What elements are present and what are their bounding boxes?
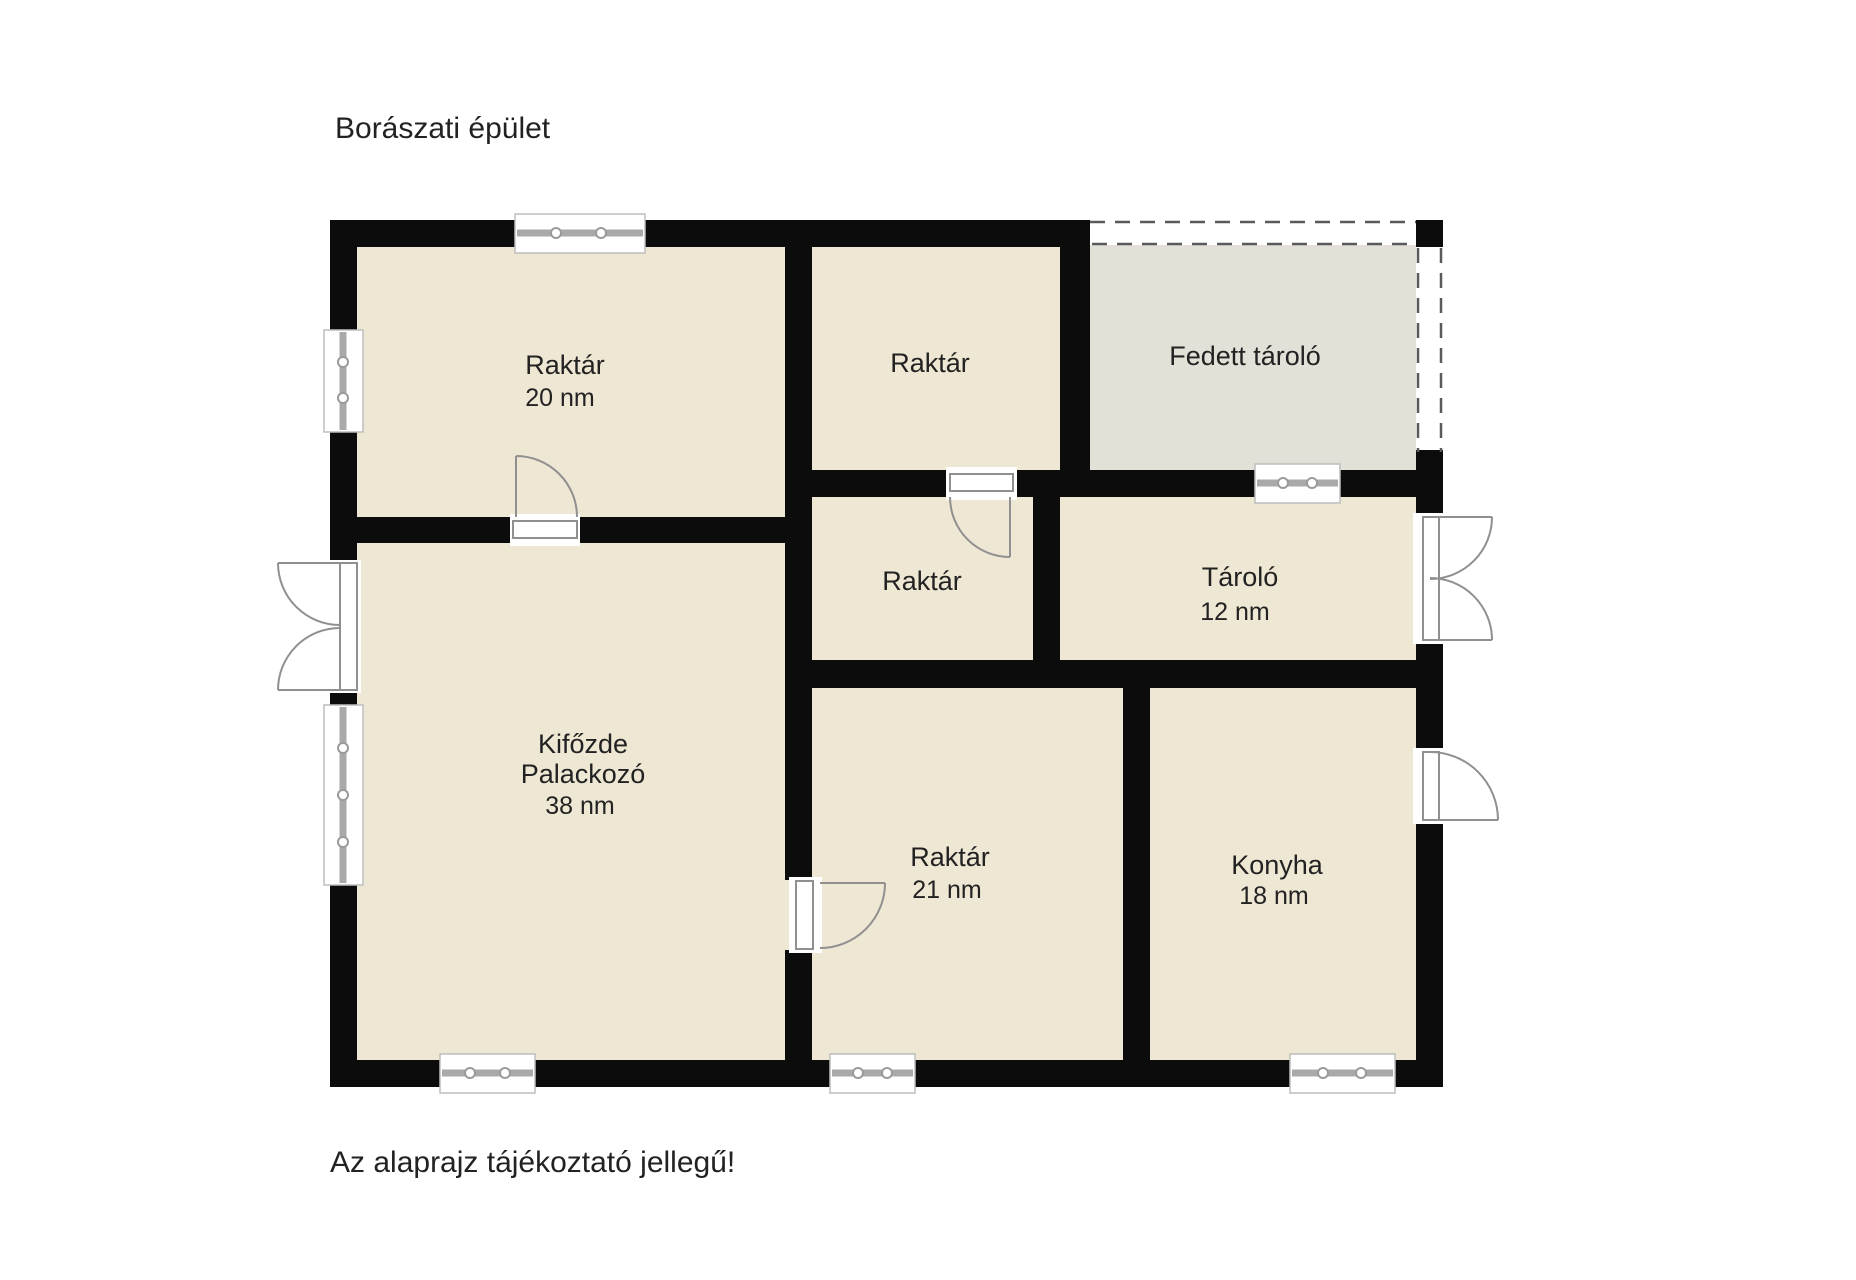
room-area-tarolo: 12 nm — [1200, 598, 1269, 626]
window-icon — [1290, 1054, 1395, 1093]
window-icon — [515, 214, 645, 253]
double-door-icon — [1413, 513, 1492, 644]
wall-mid-b — [1013, 470, 1255, 497]
room-label-konyha: Konyha — [1231, 850, 1324, 880]
wall-divider-left-upper — [785, 220, 812, 880]
room-label-kifozde-2: Palackozó — [521, 759, 646, 789]
wall-mid-a — [785, 470, 950, 497]
window-icon — [324, 705, 363, 885]
wall-divider-bottom-row — [1123, 660, 1150, 1087]
footnote: Az alaprajz tájékoztató jellegű! — [330, 1146, 735, 1179]
wall-below-raktar20-left — [330, 517, 513, 543]
room-label-raktar-top: Raktár — [890, 348, 970, 378]
double-door-icon — [278, 560, 361, 693]
room-area-raktar-20: 20 nm — [525, 384, 594, 412]
room-label-raktar-21: Raktár — [910, 842, 990, 872]
room-area-kifozde: 38 nm — [545, 792, 614, 820]
wall-above-bottom-row — [785, 660, 1443, 688]
covered-open-strip-right — [1416, 245, 1443, 452]
room-area-raktar-21: 21 nm — [912, 876, 981, 904]
window-icon — [1255, 464, 1340, 503]
room-label-fedett-tarolo: Fedett tároló — [1169, 341, 1321, 371]
wall-right-post-top — [1416, 220, 1443, 247]
window-icon — [324, 330, 363, 432]
room-label-raktar-20: Raktár — [525, 350, 605, 380]
wall-top — [330, 220, 1090, 247]
floorplan-drawing: Borászati épület — [0, 0, 1856, 1280]
wall-right-seg3 — [1416, 820, 1443, 1087]
wall-divider-mid-row — [1033, 470, 1060, 688]
room-area-konyha: 18 nm — [1239, 882, 1308, 910]
window-icon — [830, 1054, 915, 1093]
door-icon — [1413, 748, 1498, 824]
wall-divider-left-lower — [785, 950, 812, 1060]
room-label-kifozde: Kifőzde — [538, 729, 628, 759]
window-icon — [440, 1054, 535, 1093]
room-label-tarolo: Tároló — [1202, 562, 1279, 592]
wall-below-raktar20-right — [577, 517, 785, 543]
wall-divider-top-row — [1060, 220, 1090, 497]
floorplan-page: Borászati épület — [0, 0, 1856, 1280]
covered-open-strip-top — [1090, 220, 1443, 245]
page-title: Borászati épület — [335, 112, 551, 145]
room-label-raktar-mid: Raktár — [882, 566, 962, 596]
wall-right-seg2 — [1416, 640, 1443, 752]
wall-mid-c — [1340, 470, 1443, 497]
